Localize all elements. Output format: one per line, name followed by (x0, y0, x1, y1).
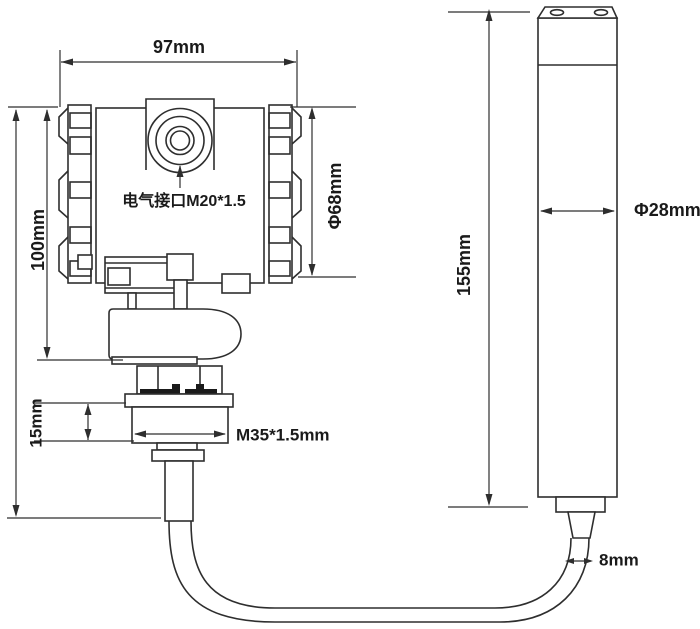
m35-thread-nut (132, 407, 228, 443)
dim-thread-spec-label: M35*1.5mm (236, 427, 330, 444)
dim-housing-width-label: 97mm (153, 38, 205, 56)
dim-housing-diameter-label: Φ68mm (326, 163, 344, 230)
drawing-canvas (0, 0, 700, 629)
dim-thread-height-label: 15mm (28, 398, 45, 447)
cable (169, 521, 589, 622)
technical-drawing: 97mm 100mm 电气接口M20*1.5 Φ68mm 15mm M35*1.… (0, 0, 700, 629)
mounting-flange (125, 394, 233, 407)
process-connection-assembly (78, 254, 250, 521)
dim-thread-height (34, 403, 134, 441)
housing-fins-right (269, 105, 301, 283)
dim-housing-height-label: 100mm (29, 209, 47, 271)
electrical-port-label: 电气接口M20*1.5 (122, 194, 246, 210)
probe-body (538, 7, 617, 538)
cable-gland (568, 512, 595, 538)
dim-probe-diameter-label: Φ28mm (634, 201, 700, 219)
dim-probe-length-label: 155mm (455, 234, 473, 296)
dim-cable-diameter-label: 8mm (599, 552, 639, 569)
cable-tube (165, 461, 193, 521)
dim-housing-diameter (290, 107, 356, 277)
